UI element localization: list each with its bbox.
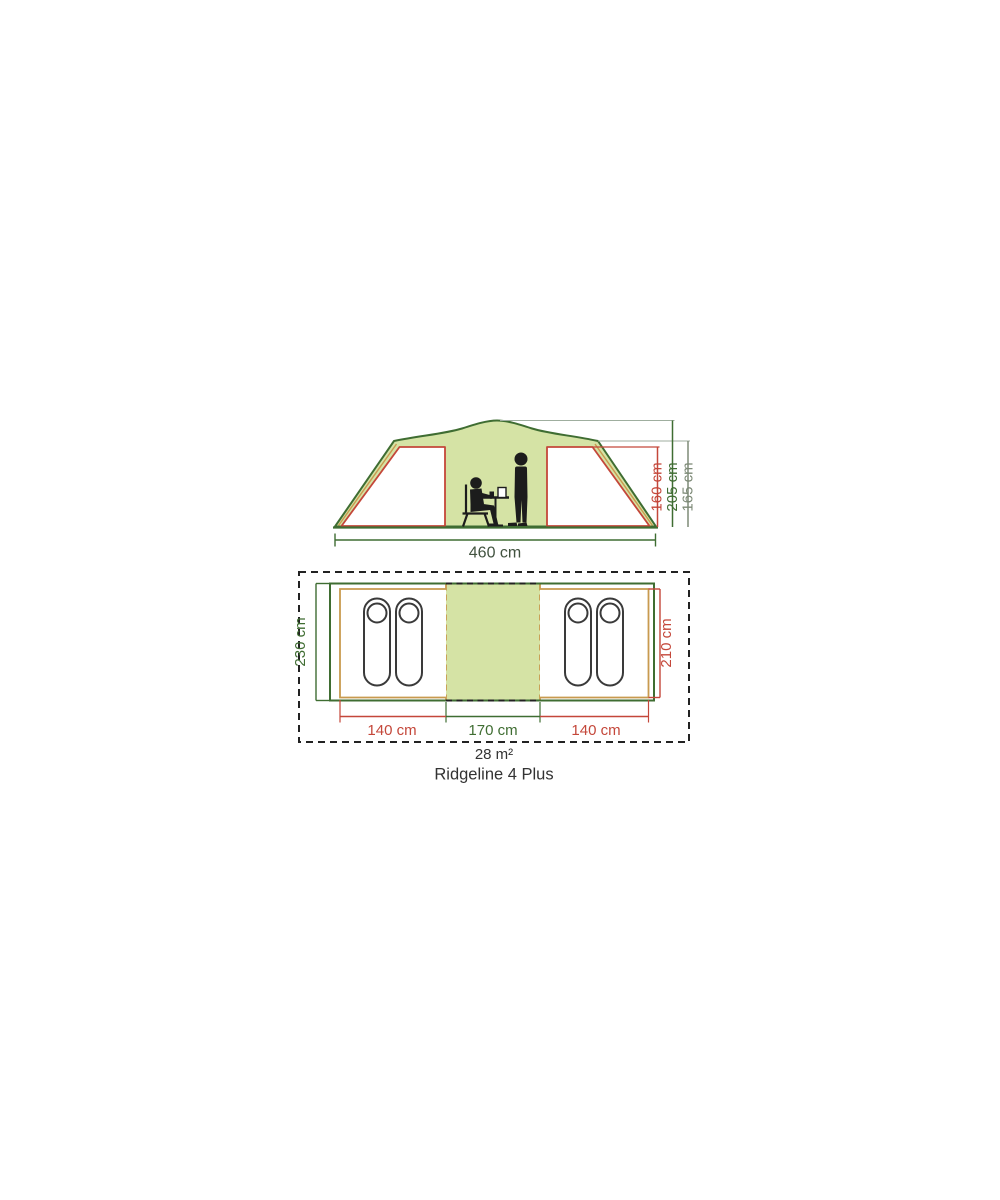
- outer-depth-label: 230 cm: [292, 617, 309, 666]
- sleeping-bag: [364, 599, 390, 686]
- sleeping-bag-hood: [400, 604, 419, 623]
- elevation-view: 160 cm 205 cm 165 cm 460 cm: [333, 421, 697, 562]
- product-title: Ridgeline 4 Plus: [434, 766, 553, 784]
- sleeping-bag: [565, 599, 591, 686]
- sleeping-bag-hood: [601, 604, 620, 623]
- right-bedroom-groundsheet: [540, 589, 649, 698]
- shoulder-height-label: 165 cm: [680, 462, 697, 511]
- left-bedroom-width-label: 140 cm: [367, 722, 416, 739]
- sleeping-bag: [597, 599, 623, 686]
- peak-height-label: 205 cm: [664, 462, 681, 511]
- standing-person-head: [515, 453, 528, 466]
- right-inner-tent: [547, 447, 650, 526]
- living-area-floor: [446, 585, 540, 700]
- sleeping-bag-hood: [368, 604, 387, 623]
- right-bedroom-width-label: 140 cm: [571, 722, 620, 739]
- tent-dimensions-diagram: 160 cm 205 cm 165 cm 460 cm: [0, 0, 1000, 1200]
- standing-person-left-foot: [508, 523, 518, 527]
- sleeping-bag: [396, 599, 422, 686]
- floorplan-view: 230 cm 210 cm 140 cm 170 cm 140 cm 28 m²…: [292, 572, 689, 784]
- living-width-label: 170 cm: [468, 722, 517, 739]
- total-width-label: 460 cm: [469, 545, 521, 562]
- seated-person-head: [470, 477, 482, 489]
- bedroom-depth-label: 210 cm: [658, 618, 675, 667]
- footprint-area-label: 28 m²: [475, 746, 513, 763]
- diagram-canvas: 160 cm 205 cm 165 cm 460 cm: [0, 0, 1000, 1200]
- carton-on-table: [498, 488, 506, 498]
- cup-on-table: [490, 492, 495, 498]
- left-bedroom-groundsheet: [340, 589, 446, 698]
- sleeping-bag-hood: [569, 604, 588, 623]
- bedroom-height-label: 160 cm: [649, 462, 666, 511]
- left-inner-tent: [342, 447, 446, 526]
